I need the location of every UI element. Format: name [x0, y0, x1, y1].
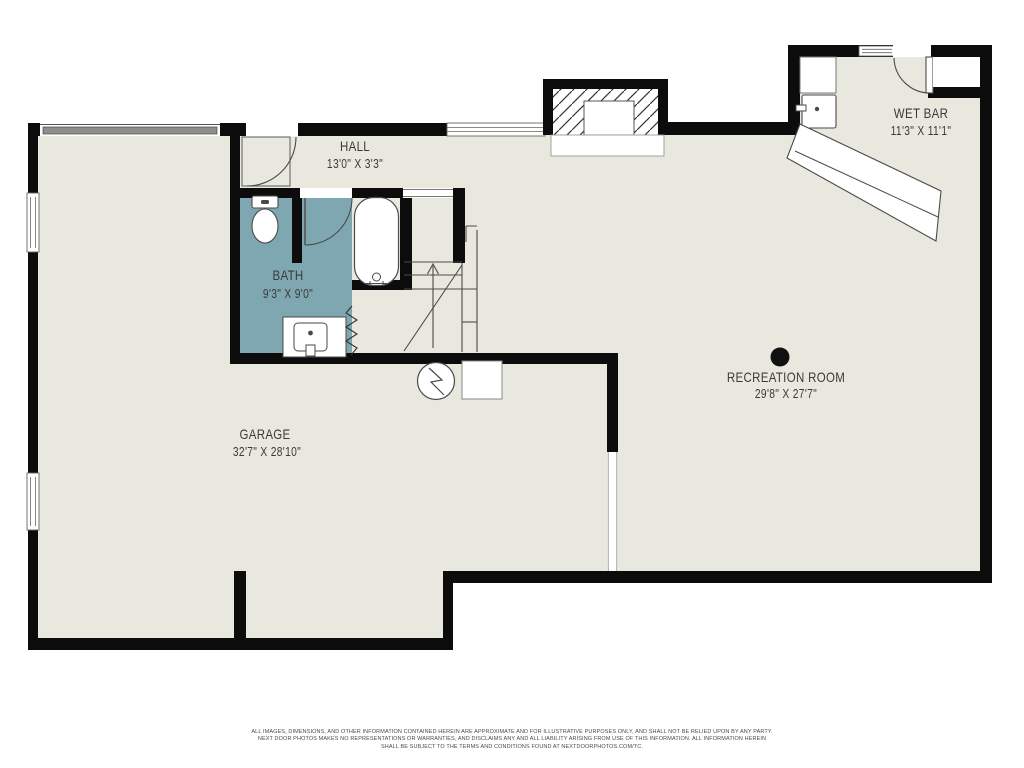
room-label-bath: BATH	[272, 267, 303, 283]
wet-bar-fridge-icon	[796, 95, 836, 128]
floor-plan-page: HALL 13'0" X 3'3" BATH 9'3" X 9'0" GARAG…	[0, 0, 1024, 768]
vanity-sink-icon	[283, 317, 346, 357]
room-dims-wetbar: 11'3" X 11'1"	[891, 124, 952, 138]
disclaimer-footer: ALL IMAGES, DIMENSIONS, AND OTHER INFORM…	[0, 729, 1024, 751]
bathtub-icon	[355, 198, 399, 287]
floor-plan-drawing	[0, 0, 1024, 768]
garage-door-icon	[40, 123, 220, 136]
window-icon-top	[447, 123, 545, 136]
room-label-garage: GARAGE	[239, 426, 290, 442]
toilet-icon	[252, 196, 278, 243]
furnace-icon	[462, 361, 502, 399]
room-label-wetbar: WET BAR	[894, 105, 948, 121]
disclaimer-line-2: NEXT DOOR PHOTOS MAKES NO REPRESENTATION…	[0, 736, 1024, 743]
window-icon-left-lower	[27, 473, 39, 530]
room-dims-garage: 32'7" X 28'10"	[233, 445, 301, 459]
room-dims-bath: 9'3" X 9'0"	[263, 287, 313, 301]
window-icon-left-upper	[27, 193, 39, 252]
disclaimer-line-1: ALL IMAGES, DIMENSIONS, AND OTHER INFORM…	[0, 729, 1024, 736]
fireplace-icon	[543, 79, 668, 156]
wall-opening	[607, 452, 618, 571]
floor-area	[33, 50, 988, 644]
room-label-hall: HALL	[340, 138, 370, 154]
water-heater-icon	[418, 363, 455, 400]
room-dims-recreation: 29'8" X 27'7"	[755, 387, 817, 401]
room-dims-hall: 13'0" X 3'3"	[327, 157, 383, 171]
room-label-recreation: RECREATION ROOM	[727, 369, 845, 385]
window-icon-wetbar	[859, 46, 895, 56]
entry-closet	[933, 57, 980, 87]
stair-opening	[403, 188, 453, 198]
fireplace-hearth	[551, 135, 664, 156]
disclaimer-line-3: SHALL BE SUBJECT TO THE TERMS AND CONDIT…	[0, 744, 1024, 751]
support-column-icon	[771, 348, 790, 367]
